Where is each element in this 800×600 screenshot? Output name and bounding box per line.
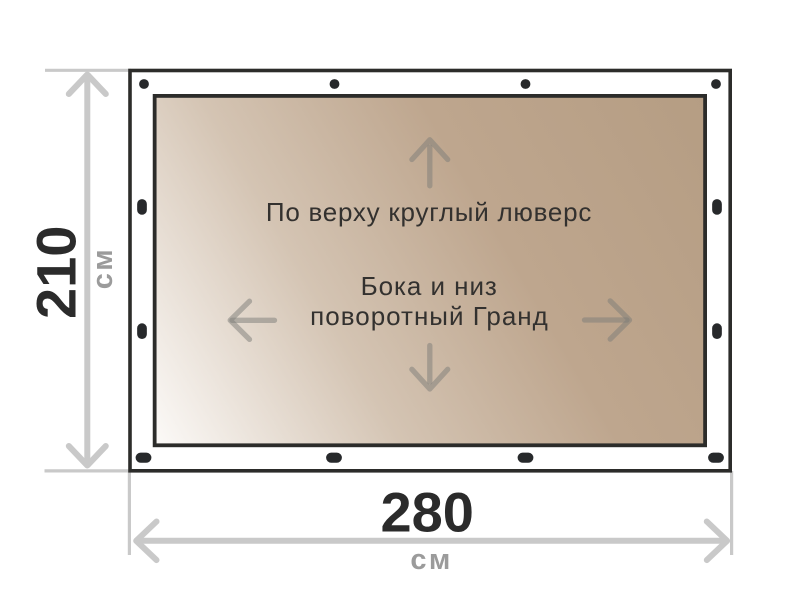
svg-text:поворотный Гранд: поворотный Гранд xyxy=(310,301,549,331)
svg-text:210: 210 xyxy=(24,226,87,319)
svg-text:280: 280 xyxy=(380,480,473,543)
svg-text:см: см xyxy=(410,544,452,576)
svg-text:Бока и низ: Бока и низ xyxy=(361,271,498,301)
svg-text:см: см xyxy=(87,247,119,289)
svg-text:По верху круглый люверс: По верху круглый люверс xyxy=(266,197,592,227)
